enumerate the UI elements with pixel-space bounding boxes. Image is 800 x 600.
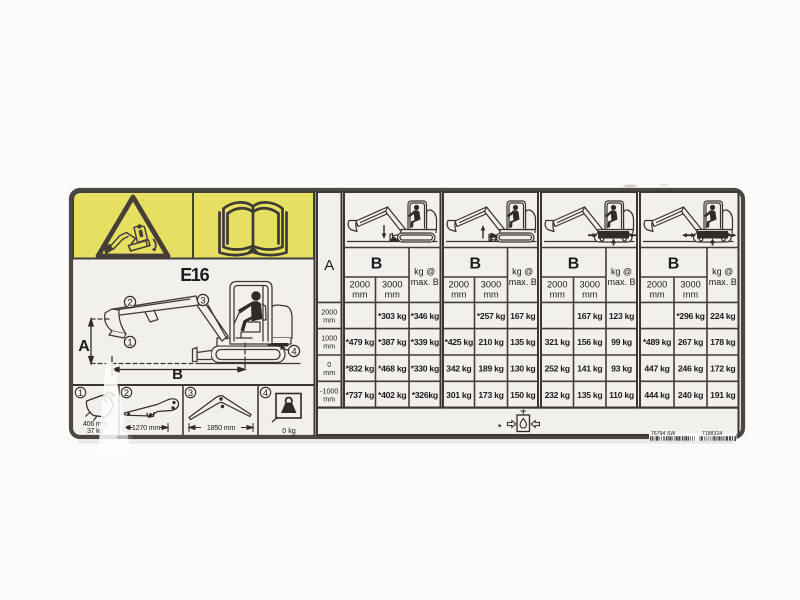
svg-text:1270 mm: 1270 mm [132,423,160,432]
svg-text:246 kg: 246 kg [678,364,703,374]
svg-text:2: 2 [127,298,132,309]
svg-text:B: B [568,256,580,273]
svg-text:150 kg: 150 kg [510,390,535,400]
svg-text:*479 kg: *479 kg [346,337,374,347]
svg-text:189 kg: 189 kg [478,364,503,374]
svg-text:A: A [324,257,334,274]
svg-text:mm: mm [323,368,335,377]
svg-text:*832 kg: *832 kg [346,364,374,374]
svg-text:3000: 3000 [580,280,600,290]
svg-text:342 kg: 342 kg [446,364,471,374]
svg-text:kg @: kg @ [414,267,435,277]
svg-text:B: B [668,256,680,273]
svg-text:*257 kg: *257 kg [477,311,505,321]
svg-text:447 kg: 447 kg [644,364,669,374]
svg-text:*402 kg: *402 kg [378,390,406,400]
svg-text:max. B: max. B [509,277,537,287]
svg-text:130 kg: 130 kg [510,364,535,374]
svg-text:178 kg: 178 kg [710,337,735,347]
svg-text:mm: mm [323,394,335,403]
svg-text:3: 3 [188,388,193,398]
svg-text:135 kg: 135 kg [510,337,535,347]
svg-text:kg @: kg @ [712,267,733,277]
svg-text:3000: 3000 [382,280,402,290]
svg-text:321 kg: 321 kg [545,337,570,347]
svg-text:7188324: 7188324 [702,431,722,437]
svg-text:4: 4 [263,388,268,398]
svg-text:4: 4 [291,347,296,358]
svg-text:3: 3 [200,296,205,307]
svg-text:2000: 2000 [647,280,667,290]
svg-text:93 kg: 93 kg [611,364,632,374]
svg-text:191 kg: 191 kg [710,390,735,400]
svg-text:*303 kg: *303 kg [378,311,406,321]
svg-text:252 kg: 252 kg [545,364,570,374]
svg-text:224 kg: 224 kg [710,311,735,321]
svg-text:mm: mm [649,290,665,300]
svg-text:444 kg: 444 kg [644,390,669,400]
svg-text:mm: mm [451,290,467,300]
svg-text:141 kg: 141 kg [577,364,602,374]
svg-text:max. B: max. B [709,277,737,287]
svg-text:max. B: max. B [411,277,439,287]
svg-text:99 kg: 99 kg [611,337,632,347]
svg-text:*296 kg: *296 kg [676,311,704,321]
svg-text:1: 1 [127,338,132,349]
svg-text:167 kg: 167 kg [510,311,535,321]
svg-text:3000: 3000 [680,280,700,290]
svg-text:*489 kg: *489 kg [643,337,671,347]
svg-text:*339 kg: *339 kg [411,337,439,347]
svg-text:*468 kg: *468 kg [378,364,406,374]
svg-text:*326kg: *326kg [412,390,438,400]
svg-text:2000: 2000 [449,280,469,290]
svg-text:*330 kg: *330 kg [411,364,439,374]
svg-text:*737 kg: *737 kg [346,390,374,400]
svg-text:mm: mm [385,290,401,300]
svg-text:3000: 3000 [481,280,501,290]
svg-text:kg @: kg @ [512,267,533,277]
svg-text:1850 mm: 1850 mm [207,423,235,432]
svg-text:301 kg: 301 kg [446,390,471,400]
svg-text:76794 SW: 76794 SW [651,431,675,437]
svg-text:210 kg: 210 kg [478,337,503,347]
svg-text:0 kg: 0 kg [282,426,296,435]
svg-text:123 kg: 123 kg [609,311,634,321]
svg-text:kg @: kg @ [611,267,632,277]
svg-text:167 kg: 167 kg [577,311,602,321]
svg-text:240 kg: 240 kg [678,390,703,400]
svg-text:B: B [469,256,481,273]
svg-text:*387 kg: *387 kg [378,337,406,347]
svg-text:A: A [78,338,90,355]
svg-text:mm: mm [323,342,335,351]
svg-text:mm: mm [483,290,499,300]
svg-text:156 kg: 156 kg [577,337,602,347]
svg-text:max. B: max. B [607,277,635,287]
svg-text:mm: mm [323,315,335,324]
svg-text:mm: mm [582,290,598,300]
svg-text:110 kg: 110 kg [609,390,634,400]
svg-text:173 kg: 173 kg [478,390,503,400]
svg-text:B: B [371,256,383,273]
svg-text:*346 kg: *346 kg [411,311,439,321]
svg-text:2: 2 [124,388,129,398]
svg-text:mm: mm [550,290,566,300]
svg-text:B: B [172,366,183,383]
svg-text:E16: E16 [180,265,209,285]
svg-text:mm: mm [352,290,368,300]
svg-text:*425 kg: *425 kg [445,337,473,347]
svg-text:2000: 2000 [547,280,567,290]
svg-text:135 kg: 135 kg [577,390,602,400]
svg-text:232 kg: 232 kg [545,390,570,400]
svg-text:mm: mm [683,290,699,300]
svg-text:172 kg: 172 kg [710,364,735,374]
svg-text:267 kg: 267 kg [678,337,703,347]
svg-text:2000: 2000 [350,280,370,290]
svg-text:1: 1 [78,388,83,398]
